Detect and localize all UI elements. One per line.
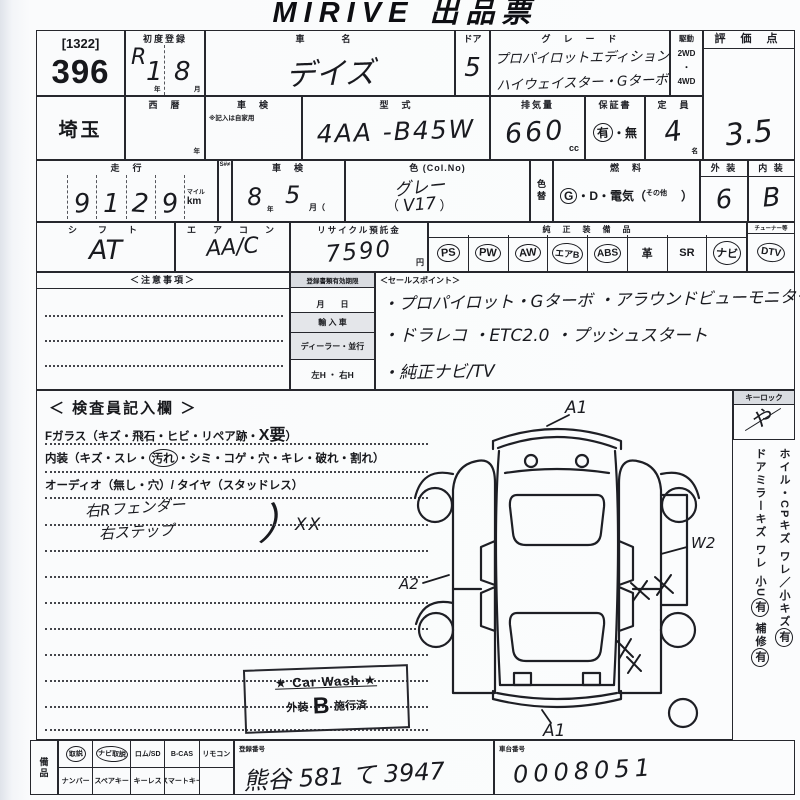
model-code-cell: 型 式 4AA -B45W <box>302 96 490 160</box>
sidebar-line1-yes: 有 <box>775 628 793 647</box>
color-change-cell: 色替 <box>530 160 553 222</box>
acc-rom-sd: ロム/SD <box>130 741 164 767</box>
sidebar-line2-mid: 補修 <box>754 617 766 648</box>
aircon-cell: エ ア コ ン AA/C <box>175 222 290 272</box>
fuel-close: ） <box>681 189 693 203</box>
equip-airbag: エアB <box>552 241 584 265</box>
prefecture-cell: 埼玉 <box>36 96 125 160</box>
door-value: 5 <box>456 53 489 83</box>
warranty-yes: 有 <box>592 122 614 143</box>
shaken-label: 車 検 <box>233 162 344 174</box>
inspection-area: ＜ 検査員記入欄 ＞ Fガラス（キズ・飛石・ヒビ・リペア跡・X要） 内装（キズ・… <box>36 390 733 740</box>
divider <box>164 45 165 95</box>
seireki-unit: 年 <box>194 145 201 155</box>
interior-dirt-circled: 汚れ <box>149 449 178 467</box>
displacement-unit: cc <box>569 143 579 153</box>
aircon-value: AA/C <box>175 231 289 264</box>
warranty-no: 無 <box>625 126 637 140</box>
shaken-month: 5 <box>285 181 300 209</box>
dotted-line <box>45 471 428 473</box>
seireki-cell: 西 暦 年 <box>125 96 205 160</box>
door-cell: ドア 5 <box>455 30 490 96</box>
mileage-digit: 9 <box>160 188 180 220</box>
displacement-value: 660 <box>504 115 567 150</box>
grade-line2: ハイウェイスター・Gターボ <box>493 68 672 94</box>
first-reg-month: 8 <box>174 57 191 87</box>
dotted-line <box>45 654 428 656</box>
sidebar-line2: ドアミラーキズ ワレ 小U <box>754 448 766 598</box>
reg-docs-date: 月 日 <box>291 285 374 313</box>
capacity-value: 4 <box>662 114 684 149</box>
equip-pw: PW <box>475 243 502 262</box>
acc-spare-key: スペアキー <box>92 768 130 794</box>
accessories-grid: 取説 ナビ取説 ロム/SD B-CAS リモコン ナンバー スペアキー キーレス… <box>58 740 234 795</box>
inspector-header: ＜ 検査員記入欄 ＞ <box>49 397 197 418</box>
interior-grade-cell: 内 装 B <box>748 160 795 222</box>
prefecture-value: 埼玉 <box>58 115 102 142</box>
drive-2wd: 2WD <box>671 47 702 61</box>
score-cell: 評 価 点 3.5 <box>703 30 795 160</box>
interior-line: 内装（キズ・スレ・ <box>45 453 149 465</box>
bihin-label: 備品 <box>38 757 51 779</box>
dotted-line <box>45 602 428 604</box>
drive-cell: 駆動 2WD ・ 4WD <box>670 30 703 96</box>
warranty-cell: 保証書 有・無 <box>585 96 645 160</box>
first-registration-label: 初度登録 <box>126 33 204 45</box>
sheet-title: MIRIVE 出品票 <box>210 0 600 31</box>
dotted-line <box>45 524 428 526</box>
color-change-label: 色替 <box>535 179 548 203</box>
shift-value: AT <box>37 235 174 266</box>
shaken-year-unit: 年 <box>267 203 274 213</box>
color-code: V17 <box>402 194 437 217</box>
mileage-cell: 走 行 9 1 2 9 マイル km <box>36 160 218 222</box>
reg-docs-dealer: ディーラー・並行 <box>291 333 374 360</box>
equip-abs: ABS <box>593 243 621 263</box>
car-wash-ext: 外装 <box>286 702 308 715</box>
registration-number-cell: 登録番号 熊谷 581 て 3947 <box>234 740 494 795</box>
car-wash-done: 施行済 <box>334 700 367 713</box>
shaken-col-note: ※記入は自家用 <box>209 112 254 122</box>
score-label: 評 価 点 <box>704 33 794 49</box>
equip-aw: AW <box>514 243 541 263</box>
drive-4wd: 4WD <box>671 75 702 89</box>
acc-keyless: キーレス <box>130 768 164 794</box>
registration-number-value: 熊谷 581 て 3947 <box>242 748 493 796</box>
registration-number-label: 登録番号 <box>239 743 265 753</box>
capacity-label: 定 員 <box>646 99 702 111</box>
equip-sr: SR <box>679 247 694 259</box>
sales-points-label: ＜セールスポイント＞ <box>380 275 460 286</box>
diagram-w2-label: W2 <box>691 534 715 552</box>
displacement-cell: 排気量 660 cc <box>490 96 585 160</box>
keylock-cell: キーロック や <box>733 390 795 440</box>
grade-line1: プロパイロットエディション <box>493 44 671 67</box>
inspector-note2: 右ステップ <box>99 519 175 544</box>
dotted-line <box>45 443 428 445</box>
s-number-cell: S#≠ <box>218 160 232 222</box>
door-label: ドア <box>456 33 489 45</box>
first-registration-cell: 初度登録 R 1 年 8 月 <box>125 30 205 96</box>
equipment-cell: 純 正 装 備 品 PS PW AW エアB ABS 革 SR ナビ <box>428 222 747 272</box>
model-code-label: 型 式 <box>303 99 489 111</box>
mileage-digit: 2 <box>131 188 150 219</box>
shaken-cell: 車 検 8 年 5 月（ <box>232 160 345 222</box>
reg-docs-import: 輸 入 車 <box>291 313 374 333</box>
shift-cell: シ フ ト AT <box>36 222 175 272</box>
equip-navi: ナビ <box>712 240 742 266</box>
notes-label: ＜注意事項＞ <box>37 274 289 289</box>
chassis-number-cell: 車台番号 0008051 <box>494 740 795 795</box>
recycle-unit: 円 <box>416 257 424 268</box>
sales-point-line3: ・純正ナビ/TV <box>382 351 794 383</box>
displacement-label: 排気量 <box>491 99 584 111</box>
sales-point-line2: ・ドラレコ ・ETC2.0 ・プッシュスタート <box>382 321 794 346</box>
drive-sep: ・ <box>671 61 702 75</box>
grade-cell: グ レ ー ド プロパイロットエディション ハイウェイスター・Gターボ <box>490 30 670 96</box>
notes-cell: ＜注意事項＞ <box>36 272 290 390</box>
fuel-label: 燃 料 <box>554 162 699 174</box>
fuel-gasoline: G <box>560 188 577 204</box>
dotted-line <box>45 365 283 367</box>
diagram-a2-label: A2 <box>398 575 419 593</box>
recycle-cell: リサイクル預託金 7590 円 <box>290 222 428 272</box>
equip-leather: 革 <box>642 245 653 261</box>
car-name-cell: 車 名 デイズ <box>205 30 455 96</box>
seireki-label: 西 暦 <box>126 99 204 111</box>
mileage-digit: 9 <box>73 188 92 219</box>
dotted-line <box>45 315 283 317</box>
drive-label: 駆動 <box>671 33 702 45</box>
mileage-digit: 1 <box>103 189 120 219</box>
glass-line: Fガラス（キズ・飛石・ヒビ・リペア跡・ <box>45 431 259 443</box>
paren-open: （ <box>386 198 399 213</box>
acc-empty <box>199 768 233 794</box>
dotted-line <box>45 628 428 630</box>
interior-value: B <box>748 181 795 214</box>
interior-label: 内 装 <box>749 162 794 177</box>
lot-bracket: [1322] <box>37 36 124 51</box>
score-value: 3.5 <box>702 111 795 155</box>
glass-mark: X要 <box>259 427 286 444</box>
diagram-a1-bottom-label: A1 <box>542 721 565 740</box>
s-number-label: S#≠ <box>219 162 231 168</box>
lot-number: 396 <box>37 53 124 91</box>
shaken-year: 8 <box>246 183 263 212</box>
exterior-grade-cell: 外 装 6 <box>700 160 748 222</box>
acc-smart-key: スマートキー <box>164 768 198 794</box>
fuel-other: その他 <box>646 190 667 197</box>
tuner-cell: チューナー等 DTV <box>747 222 795 272</box>
warranty-label: 保証書 <box>586 99 644 111</box>
exterior-label: 外 装 <box>701 162 747 177</box>
first-reg-era: R <box>131 45 146 70</box>
sales-point-line1: ・プロパイロット・Gターボ ・アラウンドビューモニター <box>382 283 794 314</box>
chassis-number-value: 0008051 <box>512 753 655 788</box>
equip-ps: PS <box>436 243 460 263</box>
shaken-note-cell: 車 検 ※記入は自家用 <box>205 96 302 160</box>
color-cell: 色 (Col.No) グレー （ V17 ） <box>345 160 530 222</box>
warranty-sep: ・ <box>613 126 625 140</box>
car-wash-stamp: ★ Car Wash ★ 外装 B 施行済 <box>243 664 410 734</box>
sidebar-line1: ホイル・CPキズ ワレ／小キズ <box>778 448 790 628</box>
reg-docs-handle: 左H ・ 右H <box>291 360 374 390</box>
acc-manual: 取説 <box>65 745 86 762</box>
mileage-unit-km: km <box>187 196 201 207</box>
acc-number-plate: ナンバー <box>59 768 92 794</box>
diagram-a1-top-label: A1 <box>564 398 587 418</box>
acc-remote: リモコン <box>199 741 233 767</box>
recycle-value: 7590 <box>290 233 428 271</box>
model-code-value: 4AA -B45W <box>303 114 490 149</box>
dotted-line <box>45 340 283 342</box>
paren-close: ） <box>440 198 453 213</box>
grade-label: グ レ ー ド <box>491 33 669 45</box>
sidebar-damage-notes: ホイル・CPキズ ワレ／小キズ有 ドアミラーキズ ワレ 小U有 補修有 <box>735 448 793 738</box>
fuel-cell: 燃 料 G・D・電気（その他） <box>553 160 700 222</box>
lot-cell: [1322] 396 <box>36 30 125 96</box>
sales-points-cell: ＜セールスポイント＞ ・プロパイロット・Gターボ ・アラウンドビューモニター ・… <box>375 272 795 390</box>
tuner-dtv: DTV <box>756 241 786 264</box>
car-name-label: 車 名 <box>206 33 454 45</box>
acc-bcas: B-CAS <box>164 741 198 767</box>
sidebar-line2-yes: 有 <box>751 598 769 617</box>
dotted-line <box>45 550 428 552</box>
interior-line-post: ・シミ・コゲ・穴・キレ・破れ・割れ） <box>178 453 385 465</box>
car-name-value: デイズ <box>205 45 454 98</box>
year-unit: 年 <box>154 83 161 93</box>
keylock-mark: や <box>747 401 774 435</box>
car-wash-grade: B <box>312 692 330 719</box>
sidebar-line2-yes2: 有 <box>751 648 769 667</box>
bihin-cell: 備品 <box>30 740 58 795</box>
mileage-label: 走 行 <box>37 162 217 174</box>
reg-docs-cell: 登録書類有効期限 月 日 輸 入 車 ディーラー・並行 左H ・ 右H <box>290 272 375 390</box>
car-diagram: A1 W2 A2 A1 <box>395 395 733 740</box>
glass-close: ） <box>285 431 297 443</box>
exterior-value: 6 <box>700 183 748 217</box>
capacity-cell: 定 員 4 名 <box>645 96 703 160</box>
month-unit: 月 <box>194 83 201 93</box>
capacity-unit: 名 <box>692 145 699 155</box>
shaken-col-label: 車 検 <box>206 99 301 111</box>
shaken-month-unit: 月（ <box>309 202 325 213</box>
fuel-mid: ・D・電気（ <box>577 189 646 203</box>
dotted-line <box>45 576 428 578</box>
mileage-unit-mile: マイル <box>187 187 205 196</box>
auction-sheet: MIRIVE 出品票 [1322] 396 初度登録 R 1 年 8 月 車 名… <box>0 0 800 800</box>
acc-navi-manual: ナビ取説 <box>95 745 128 763</box>
chassis-number-label: 車台番号 <box>499 743 525 753</box>
